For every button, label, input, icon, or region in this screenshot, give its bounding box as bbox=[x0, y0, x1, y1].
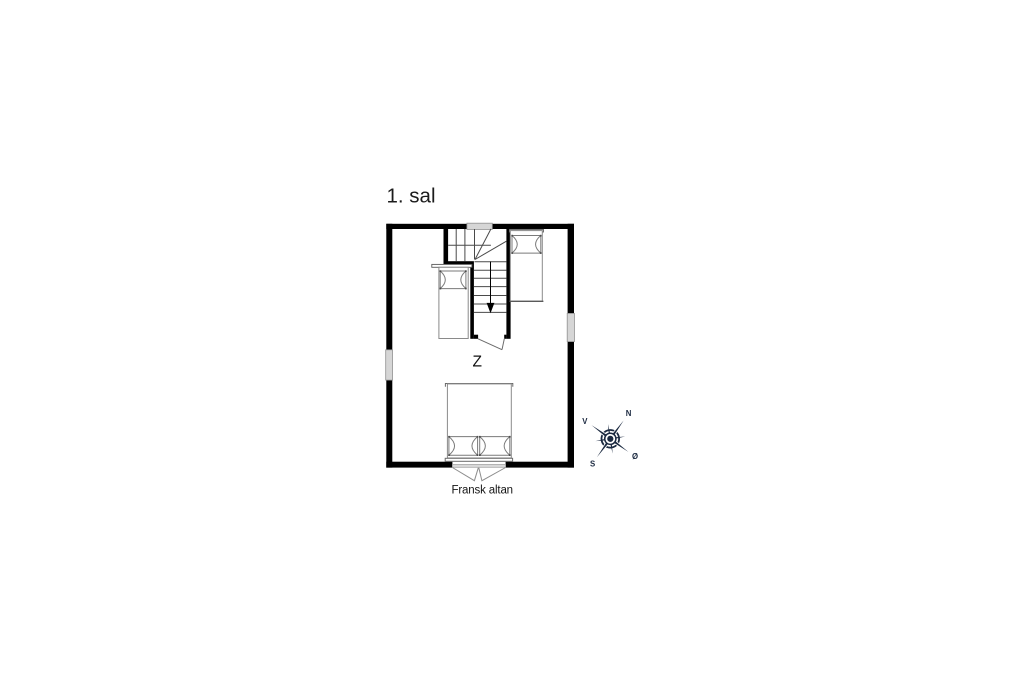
svg-text:Fransk altan: Fransk altan bbox=[451, 485, 512, 497]
svg-text:S: S bbox=[590, 460, 595, 469]
svg-text:N: N bbox=[626, 409, 632, 418]
svg-text:Z: Z bbox=[472, 354, 481, 371]
svg-text:V: V bbox=[582, 417, 588, 426]
svg-text:1. sal: 1. sal bbox=[387, 185, 436, 208]
svg-text:Ø: Ø bbox=[632, 452, 638, 461]
